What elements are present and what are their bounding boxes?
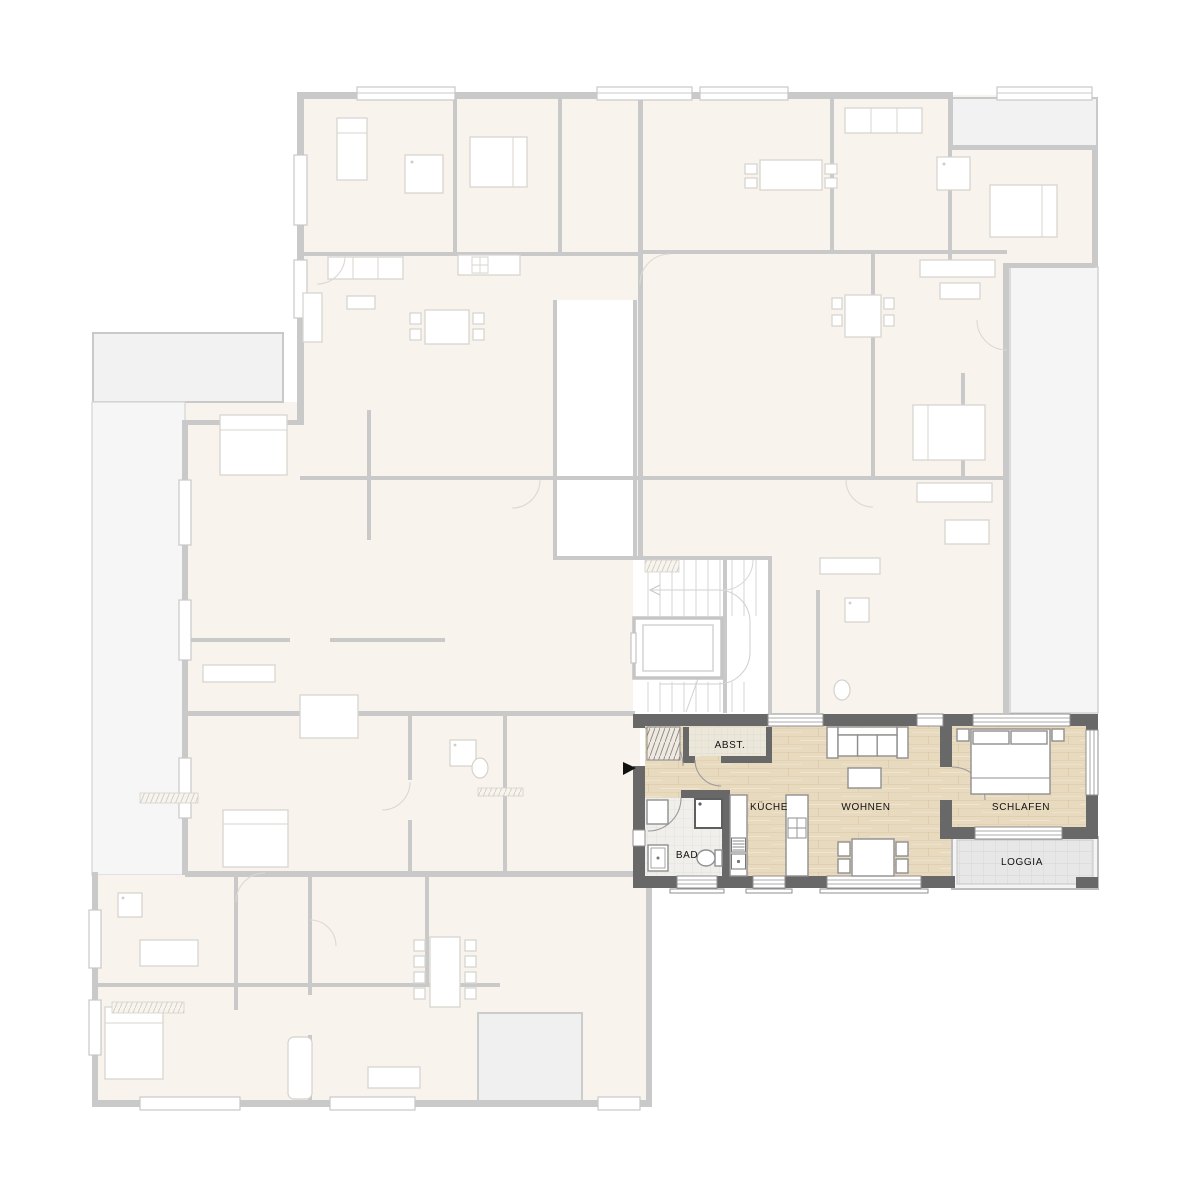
sofa <box>827 727 908 758</box>
kitchen-island <box>786 795 808 876</box>
floor-plan-canvas: ABST. KÜCHE WOHNEN SCHLAFEN BAD LOGGIA <box>0 0 1200 1200</box>
wardrobe <box>647 727 680 760</box>
double-bed <box>957 729 1064 794</box>
room-label-abst: ABST. <box>715 740 746 751</box>
highlighted-apartment: ABST. KÜCHE WOHNEN SCHLAFEN BAD LOGGIA <box>623 714 1098 893</box>
room-label-schlafen: SCHLAFEN <box>992 802 1050 813</box>
coffee-table <box>848 768 881 788</box>
room-label-bad: BAD <box>676 850 698 861</box>
kitchen-counter <box>730 795 747 876</box>
room-label-kueche: KÜCHE <box>750 801 788 813</box>
faded-building <box>89 87 1098 1110</box>
room-label-wohnen: WOHNEN <box>841 802 890 813</box>
floor-plan-svg: ABST. KÜCHE WOHNEN SCHLAFEN BAD LOGGIA <box>0 0 1200 1200</box>
room-label-loggia: LOGGIA <box>1001 857 1043 868</box>
